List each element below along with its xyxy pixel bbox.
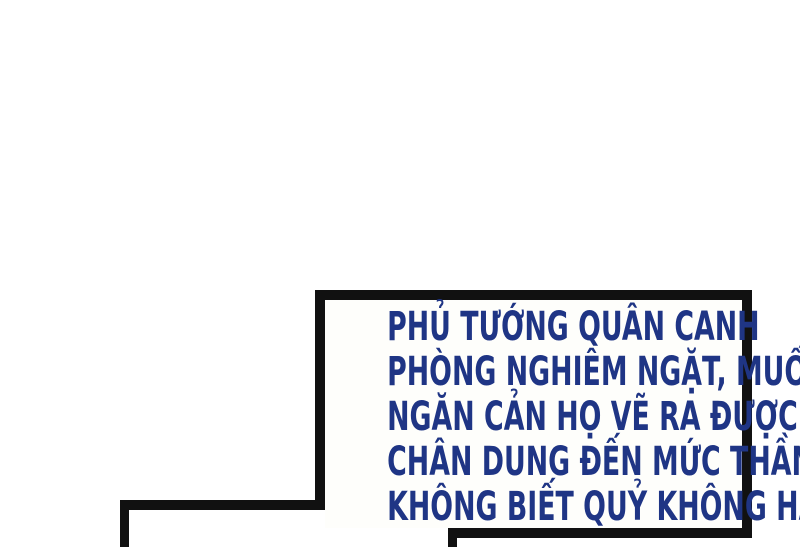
- panel-border-left-vertical: [120, 500, 129, 547]
- speech-text-line: NGĂN CẢN HỌ VẼ RA ĐƯỢC: [387, 395, 680, 440]
- speech-text-line: KHÔNG BIẾT QUỶ KHÔNG HAY: [387, 485, 680, 530]
- speech-text: PHỦ TƯỚNG QUÂN CANH PHÒNG NGHIÊM NGẶT, M…: [387, 305, 680, 530]
- speech-box-border-top: [315, 290, 752, 300]
- speech-box-border-left: [315, 290, 325, 510]
- speech-text-line: PHỦ TƯỚNG QUÂN CANH: [387, 305, 680, 350]
- speech-text-line: PHÒNG NGHIÊM NGẶT, MUỐN: [387, 350, 680, 395]
- speech-text-line: CHÂN DUNG ĐẾN MỨC THẦN: [387, 440, 680, 485]
- comic-page: PHỦ TƯỚNG QUÂN CANH PHÒNG NGHIÊM NGẶT, M…: [0, 0, 800, 547]
- panel-border-top-left-horizontal: [120, 500, 325, 510]
